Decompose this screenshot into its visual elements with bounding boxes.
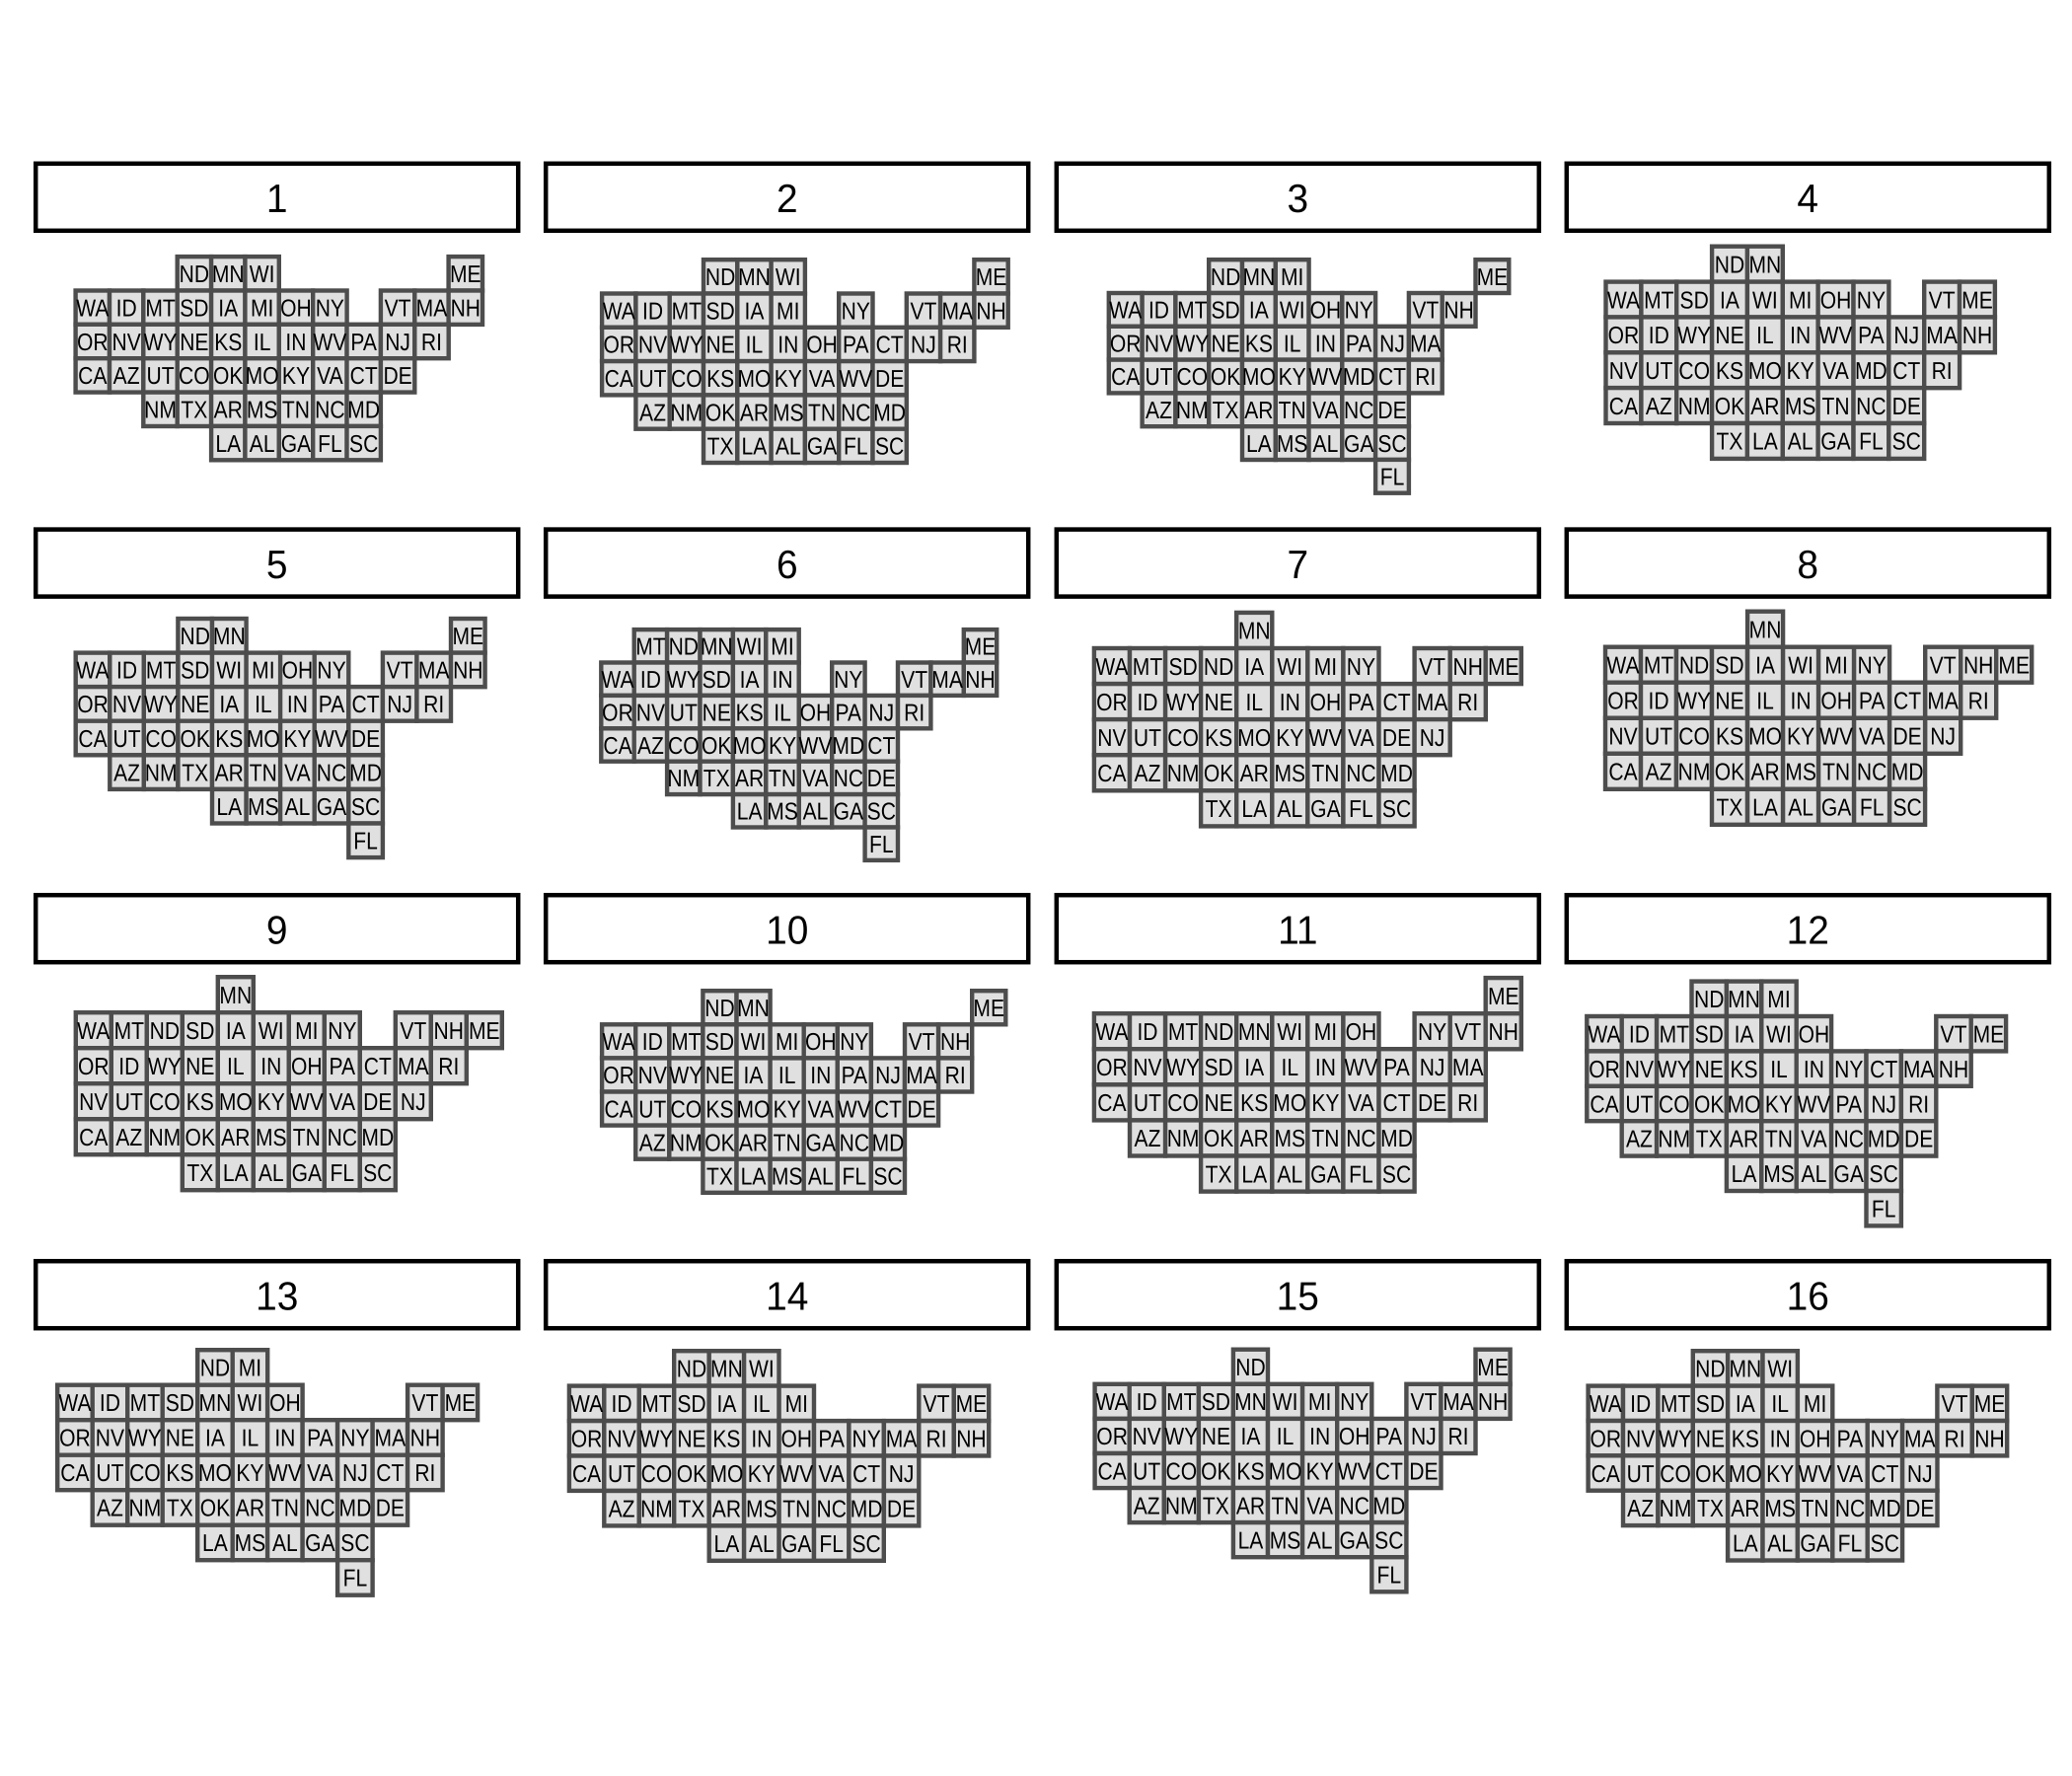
svg-text:TX: TX: [1206, 796, 1232, 823]
svg-text:ND: ND: [669, 634, 699, 661]
svg-text:WY: WY: [639, 1427, 673, 1453]
svg-text:OR: OR: [571, 1427, 603, 1453]
svg-text:NY: NY: [1857, 287, 1886, 314]
svg-text:SC: SC: [1374, 1527, 1403, 1554]
svg-text:VA: VA: [802, 766, 829, 792]
svg-text:NM: NM: [670, 1130, 703, 1156]
svg-text:CT: CT: [1893, 689, 1921, 715]
svg-text:WI: WI: [741, 1029, 767, 1056]
svg-text:MD: MD: [873, 400, 906, 426]
svg-text:MO: MO: [737, 366, 771, 393]
svg-text:NY: NY: [842, 298, 870, 325]
svg-text:IA: IA: [218, 295, 238, 322]
svg-text:RI: RI: [1457, 690, 1478, 716]
svg-text:AR: AR: [1730, 1127, 1758, 1153]
svg-text:MD: MD: [1868, 1127, 1900, 1153]
svg-text:MO: MO: [1748, 358, 1782, 385]
svg-text:CO: CO: [1678, 358, 1710, 385]
svg-text:NV: NV: [1626, 1426, 1656, 1452]
svg-text:MN: MN: [1234, 1389, 1267, 1416]
svg-text:MI: MI: [1804, 1391, 1826, 1418]
svg-text:NY: NY: [340, 1426, 369, 1452]
svg-text:SD: SD: [1695, 1022, 1724, 1049]
svg-text:GA: GA: [317, 794, 347, 821]
svg-text:NC: NC: [1344, 398, 1373, 424]
svg-text:NY: NY: [840, 1029, 868, 1056]
svg-text:NJ: NJ: [889, 1461, 915, 1488]
svg-text:TN: TN: [1765, 1127, 1793, 1153]
svg-text:WV: WV: [1819, 724, 1854, 751]
svg-text:KY: KY: [769, 733, 796, 760]
svg-text:MD: MD: [1869, 1496, 1901, 1522]
svg-text:WY: WY: [148, 1054, 182, 1080]
svg-text:OH: OH: [1310, 298, 1342, 325]
svg-text:MD: MD: [1372, 1493, 1405, 1519]
svg-text:DE: DE: [1904, 1127, 1933, 1153]
svg-text:ND: ND: [1694, 987, 1724, 1013]
svg-text:LA: LA: [737, 799, 763, 826]
svg-text:MS: MS: [1785, 760, 1816, 786]
svg-text:WA: WA: [1095, 654, 1129, 681]
svg-text:DE: DE: [1905, 1496, 1934, 1522]
svg-text:ND: ND: [1211, 264, 1240, 291]
svg-text:MO: MO: [1729, 1461, 1762, 1488]
svg-text:KY: KY: [282, 363, 310, 390]
svg-text:GA: GA: [292, 1160, 323, 1187]
svg-text:SD: SD: [1715, 653, 1743, 680]
svg-text:NC: NC: [840, 1130, 869, 1156]
svg-text:CT: CT: [1892, 358, 1920, 385]
svg-text:RI: RI: [1908, 1091, 1929, 1118]
svg-text:MN: MN: [701, 634, 733, 661]
svg-text:MA: MA: [398, 1054, 429, 1080]
svg-text:OR: OR: [1096, 1055, 1128, 1081]
svg-text:CO: CO: [1659, 1091, 1690, 1118]
svg-text:NV: NV: [111, 330, 141, 356]
svg-text:NY: NY: [1345, 298, 1373, 325]
svg-text:TX: TX: [707, 434, 734, 461]
svg-text:GA: GA: [1820, 429, 1851, 456]
svg-text:WY: WY: [1175, 332, 1209, 358]
svg-text:IN: IN: [777, 333, 798, 359]
svg-text:KY: KY: [1276, 725, 1303, 752]
svg-text:CO: CO: [145, 726, 177, 753]
svg-text:TN: TN: [282, 398, 310, 424]
svg-text:WV: WV: [313, 330, 347, 356]
svg-text:CT: CT: [874, 1096, 902, 1123]
svg-text:MO: MO: [733, 733, 767, 760]
svg-text:NH: NH: [453, 658, 482, 685]
svg-text:GA: GA: [1800, 1531, 1830, 1558]
svg-text:WA: WA: [1096, 1389, 1130, 1416]
svg-text:AZ: AZ: [1135, 761, 1161, 787]
svg-text:CO: CO: [1165, 1458, 1197, 1485]
svg-text:NV: NV: [638, 333, 668, 359]
svg-text:OR: OR: [1607, 689, 1639, 715]
svg-text:PA: PA: [843, 333, 869, 359]
svg-text:ME: ME: [450, 261, 481, 288]
svg-text:VA: VA: [1822, 358, 1849, 385]
svg-text:CO: CO: [1167, 1090, 1199, 1117]
svg-text:WV: WV: [315, 726, 349, 753]
svg-text:OH: OH: [280, 295, 312, 322]
svg-text:DE: DE: [907, 1096, 935, 1123]
svg-text:UT: UT: [608, 1461, 635, 1488]
svg-text:CT: CT: [1375, 1458, 1403, 1485]
svg-text:IN: IN: [285, 330, 306, 356]
svg-text:WA: WA: [77, 1018, 111, 1045]
svg-text:WV: WV: [1799, 1461, 1833, 1488]
svg-text:MI: MI: [239, 1356, 261, 1382]
svg-text:AR: AR: [1240, 761, 1269, 787]
svg-text:SC: SC: [875, 434, 904, 461]
svg-text:MO: MO: [247, 726, 280, 753]
svg-text:MT: MT: [1644, 653, 1673, 680]
svg-text:IA: IA: [219, 692, 239, 718]
svg-text:MI: MI: [1767, 987, 1790, 1013]
svg-text:ID: ID: [1649, 323, 1669, 349]
svg-text:SC: SC: [1377, 431, 1406, 458]
svg-text:WI: WI: [1752, 287, 1778, 314]
svg-text:ME: ME: [1961, 287, 1993, 314]
svg-text:MS: MS: [1274, 1126, 1305, 1152]
svg-text:MA: MA: [886, 1427, 918, 1453]
svg-text:OK: OK: [1201, 1458, 1231, 1485]
svg-text:GA: GA: [1821, 795, 1852, 822]
svg-text:NE: NE: [181, 692, 209, 718]
svg-text:MS: MS: [235, 1530, 266, 1557]
svg-text:WA: WA: [1590, 1391, 1623, 1418]
svg-text:SD: SD: [1211, 298, 1239, 325]
svg-text:UT: UT: [638, 366, 666, 393]
svg-text:OH: OH: [1339, 1424, 1370, 1450]
svg-text:NH: NH: [1962, 323, 1992, 349]
svg-text:WI: WI: [1280, 298, 1305, 325]
svg-text:VA: VA: [1348, 1090, 1374, 1117]
svg-text:NV: NV: [636, 700, 666, 726]
svg-text:ND: ND: [180, 624, 209, 650]
svg-text:NJ: NJ: [875, 1063, 901, 1089]
svg-text:SC: SC: [363, 1160, 392, 1187]
svg-text:DE: DE: [887, 1497, 916, 1523]
svg-text:TX: TX: [1697, 1496, 1724, 1522]
svg-text:CT: CT: [852, 1461, 880, 1488]
svg-text:OR: OR: [78, 1054, 110, 1080]
svg-text:MD: MD: [1855, 358, 1887, 385]
svg-text:MI: MI: [1314, 1019, 1337, 1046]
svg-text:10: 10: [766, 908, 808, 953]
svg-text:TN: TN: [1822, 760, 1850, 786]
svg-text:OH: OH: [1799, 1022, 1830, 1049]
svg-text:NM: NM: [1678, 394, 1711, 420]
svg-text:UT: UT: [1625, 1091, 1653, 1118]
svg-text:NY: NY: [1418, 1019, 1446, 1046]
svg-text:IN: IN: [810, 1063, 831, 1089]
svg-text:KS: KS: [1731, 1057, 1758, 1083]
svg-text:GA: GA: [806, 1130, 837, 1156]
svg-text:VA: VA: [809, 366, 836, 393]
svg-text:ND: ND: [1204, 1019, 1233, 1046]
svg-text:MA: MA: [1904, 1426, 1936, 1452]
svg-text:CA: CA: [1097, 761, 1127, 787]
svg-text:ID: ID: [1148, 298, 1169, 325]
svg-text:LA: LA: [1752, 429, 1778, 456]
svg-text:NC: NC: [328, 1125, 357, 1151]
svg-text:MS: MS: [1274, 761, 1305, 787]
svg-text:AR: AR: [740, 400, 769, 426]
svg-text:NY: NY: [317, 658, 345, 685]
svg-text:SC: SC: [1892, 429, 1921, 456]
svg-text:ID: ID: [640, 667, 661, 694]
svg-text:PA: PA: [319, 692, 345, 718]
svg-text:TX: TX: [1717, 795, 1743, 822]
svg-text:WV: WV: [290, 1089, 325, 1116]
svg-text:OH: OH: [1346, 1019, 1377, 1046]
svg-text:OK: OK: [185, 1125, 216, 1151]
svg-text:NE: NE: [1695, 1057, 1724, 1083]
svg-text:KY: KY: [1787, 358, 1814, 385]
svg-text:CT: CT: [1870, 1057, 1897, 1083]
svg-text:PA: PA: [1383, 1055, 1410, 1081]
svg-text:PA: PA: [1348, 690, 1374, 716]
svg-text:NH: NH: [1452, 654, 1482, 681]
svg-text:AZ: AZ: [609, 1497, 635, 1523]
svg-text:AR: AR: [1244, 398, 1273, 424]
svg-text:IN: IN: [1280, 690, 1300, 716]
svg-text:DE: DE: [1382, 725, 1411, 752]
svg-text:NE: NE: [1211, 332, 1239, 358]
svg-text:WI: WI: [216, 658, 242, 685]
svg-text:FL: FL: [318, 431, 342, 458]
svg-text:UT: UT: [1133, 1458, 1160, 1485]
svg-text:NC: NC: [1856, 394, 1886, 420]
svg-text:KS: KS: [166, 1460, 193, 1487]
svg-text:ND: ND: [150, 1018, 180, 1045]
svg-text:FL: FL: [869, 832, 894, 858]
svg-text:MD: MD: [1380, 761, 1413, 787]
svg-text:WY: WY: [1677, 323, 1711, 349]
svg-text:LA: LA: [741, 1164, 767, 1191]
svg-text:MO: MO: [1748, 724, 1782, 751]
svg-text:NY: NY: [328, 1018, 356, 1045]
svg-text:AL: AL: [259, 1160, 284, 1187]
svg-text:OK: OK: [705, 400, 736, 426]
svg-text:FL: FL: [343, 1566, 368, 1592]
svg-text:MO: MO: [1237, 725, 1271, 752]
svg-text:NJ: NJ: [1420, 725, 1445, 752]
svg-text:WI: WI: [1767, 1357, 1793, 1383]
svg-text:NE: NE: [705, 1063, 734, 1089]
svg-text:IL: IL: [774, 700, 791, 726]
svg-text:NC: NC: [1834, 1127, 1864, 1153]
svg-text:CO: CO: [641, 1461, 673, 1488]
svg-text:NV: NV: [1133, 1055, 1162, 1081]
svg-text:AZ: AZ: [1146, 398, 1172, 424]
svg-text:IN: IN: [260, 1054, 281, 1080]
svg-text:ID: ID: [642, 1029, 663, 1056]
svg-text:UT: UT: [1645, 724, 1672, 751]
svg-text:NY: NY: [1871, 1426, 1899, 1452]
svg-text:MN: MN: [1749, 618, 1782, 644]
svg-text:PA: PA: [1376, 1424, 1403, 1450]
svg-text:WI: WI: [238, 1390, 263, 1417]
svg-text:SD: SD: [180, 295, 208, 322]
svg-text:ID: ID: [1630, 1391, 1651, 1418]
svg-text:OK: OK: [180, 726, 210, 753]
svg-text:MA: MA: [375, 1426, 407, 1452]
svg-text:GA: GA: [1310, 796, 1341, 823]
svg-text:LA: LA: [1732, 1161, 1757, 1188]
svg-text:ND: ND: [1695, 1357, 1725, 1383]
svg-text:MI: MI: [776, 1029, 798, 1056]
svg-text:DE: DE: [1892, 724, 1921, 751]
svg-text:TN: TN: [774, 1130, 801, 1156]
svg-text:NY: NY: [316, 295, 344, 322]
svg-text:TX: TX: [679, 1497, 705, 1523]
svg-text:FL: FL: [1859, 429, 1884, 456]
svg-text:RI: RI: [421, 330, 442, 356]
svg-text:MI: MI: [252, 658, 274, 685]
svg-text:KY: KY: [1306, 1458, 1334, 1485]
svg-text:MD: MD: [361, 1125, 394, 1151]
svg-text:MS: MS: [1270, 1527, 1301, 1554]
svg-text:TN: TN: [293, 1125, 321, 1151]
svg-text:TN: TN: [782, 1497, 810, 1523]
svg-text:TX: TX: [1203, 1493, 1229, 1519]
svg-text:MT: MT: [672, 298, 702, 325]
svg-text:CA: CA: [78, 726, 108, 753]
svg-text:RI: RI: [423, 692, 444, 718]
svg-text:SC: SC: [1892, 795, 1921, 822]
svg-text:KS: KS: [712, 1427, 740, 1453]
svg-text:IA: IA: [744, 1063, 764, 1089]
svg-text:FL: FL: [1838, 1531, 1863, 1558]
svg-text:LA: LA: [202, 1530, 228, 1557]
svg-text:ND: ND: [1204, 654, 1233, 681]
svg-text:UT: UT: [115, 1089, 143, 1116]
svg-text:ND: ND: [200, 1356, 230, 1382]
svg-text:PA: PA: [1837, 1426, 1864, 1452]
svg-text:MN: MN: [1728, 987, 1760, 1013]
svg-text:TN: TN: [1821, 394, 1849, 420]
svg-text:RI: RI: [1945, 1426, 1965, 1452]
svg-text:MT: MT: [641, 1391, 671, 1418]
svg-text:LA: LA: [215, 431, 241, 458]
svg-text:AR: AR: [1750, 394, 1779, 420]
svg-text:CO: CO: [129, 1460, 161, 1487]
svg-text:IL: IL: [1756, 323, 1774, 349]
svg-text:IA: IA: [205, 1426, 225, 1452]
svg-text:KY: KY: [258, 1089, 285, 1116]
svg-text:WI: WI: [776, 264, 801, 291]
svg-text:VA: VA: [1306, 1493, 1333, 1519]
svg-text:VT: VT: [411, 1390, 438, 1417]
svg-text:OK: OK: [1715, 394, 1745, 420]
svg-text:IL: IL: [1771, 1391, 1789, 1418]
svg-text:OH: OH: [269, 1390, 301, 1417]
svg-text:UT: UT: [670, 700, 698, 726]
svg-text:OH: OH: [805, 1029, 837, 1056]
svg-text:CA: CA: [1590, 1091, 1619, 1118]
svg-text:FL: FL: [1349, 796, 1373, 823]
svg-text:NC: NC: [1835, 1496, 1865, 1522]
svg-text:IA: IA: [1244, 654, 1264, 681]
svg-text:TN: TN: [1272, 1493, 1299, 1519]
svg-text:SC: SC: [349, 431, 378, 458]
svg-text:FL: FL: [1872, 1197, 1896, 1223]
svg-text:NH: NH: [1443, 298, 1473, 325]
svg-text:CA: CA: [605, 366, 634, 393]
svg-text:NV: NV: [1133, 1424, 1162, 1450]
svg-text:NE: NE: [1202, 1424, 1230, 1450]
svg-text:UT: UT: [1627, 1461, 1655, 1488]
svg-text:SC: SC: [867, 799, 896, 826]
svg-text:PA: PA: [1346, 332, 1372, 358]
svg-text:7: 7: [1287, 542, 1308, 587]
svg-text:3: 3: [1287, 176, 1308, 221]
svg-text:AZ: AZ: [113, 760, 140, 786]
svg-text:KY: KY: [1787, 724, 1814, 751]
svg-text:MD: MD: [1891, 760, 1924, 786]
svg-text:OK: OK: [1204, 761, 1234, 787]
svg-text:SC: SC: [1870, 1161, 1898, 1188]
svg-text:MT: MT: [1168, 1019, 1198, 1046]
svg-text:DE: DE: [363, 1089, 392, 1116]
svg-text:GA: GA: [781, 1531, 812, 1558]
svg-text:MD: MD: [1343, 364, 1375, 391]
svg-text:MI: MI: [785, 1391, 808, 1418]
svg-text:MO: MO: [1728, 1091, 1761, 1118]
svg-text:MA: MA: [1443, 1389, 1474, 1416]
svg-text:TX: TX: [1696, 1127, 1723, 1153]
svg-text:NE: NE: [1204, 690, 1232, 716]
svg-text:FL: FL: [1380, 465, 1405, 491]
svg-text:CT: CT: [1378, 364, 1406, 391]
svg-text:SD: SD: [166, 1390, 194, 1417]
svg-text:IL: IL: [242, 1426, 259, 1452]
svg-text:VT: VT: [1942, 1391, 1968, 1418]
svg-text:KY: KY: [1279, 364, 1306, 391]
svg-text:IN: IN: [287, 692, 308, 718]
svg-text:GA: GA: [281, 431, 312, 458]
svg-text:VA: VA: [808, 1096, 835, 1123]
svg-text:KS: KS: [1240, 1090, 1268, 1117]
svg-text:NY: NY: [1834, 1057, 1863, 1083]
svg-text:OH: OH: [282, 658, 314, 685]
svg-text:VA: VA: [317, 363, 343, 390]
svg-text:RI: RI: [1415, 364, 1436, 391]
svg-text:NH: NH: [940, 1029, 970, 1056]
svg-text:MA: MA: [416, 295, 448, 322]
svg-text:WY: WY: [1166, 690, 1200, 716]
svg-text:AL: AL: [272, 1530, 298, 1557]
svg-text:OR: OR: [1096, 690, 1128, 716]
svg-text:ID: ID: [1137, 690, 1157, 716]
svg-text:OK: OK: [213, 363, 244, 390]
svg-text:TX: TX: [1717, 429, 1743, 456]
svg-text:CT: CT: [1871, 1461, 1898, 1488]
svg-text:WI: WI: [1277, 654, 1302, 681]
svg-text:LA: LA: [1241, 796, 1267, 823]
svg-text:NM: NM: [148, 1125, 181, 1151]
svg-text:AL: AL: [803, 799, 829, 826]
svg-text:KY: KY: [236, 1460, 263, 1487]
svg-text:FL: FL: [1860, 795, 1885, 822]
svg-text:VT: VT: [385, 295, 411, 322]
svg-text:IL: IL: [1756, 689, 1774, 715]
svg-text:MN: MN: [1243, 264, 1276, 291]
svg-text:GA: GA: [834, 799, 864, 826]
